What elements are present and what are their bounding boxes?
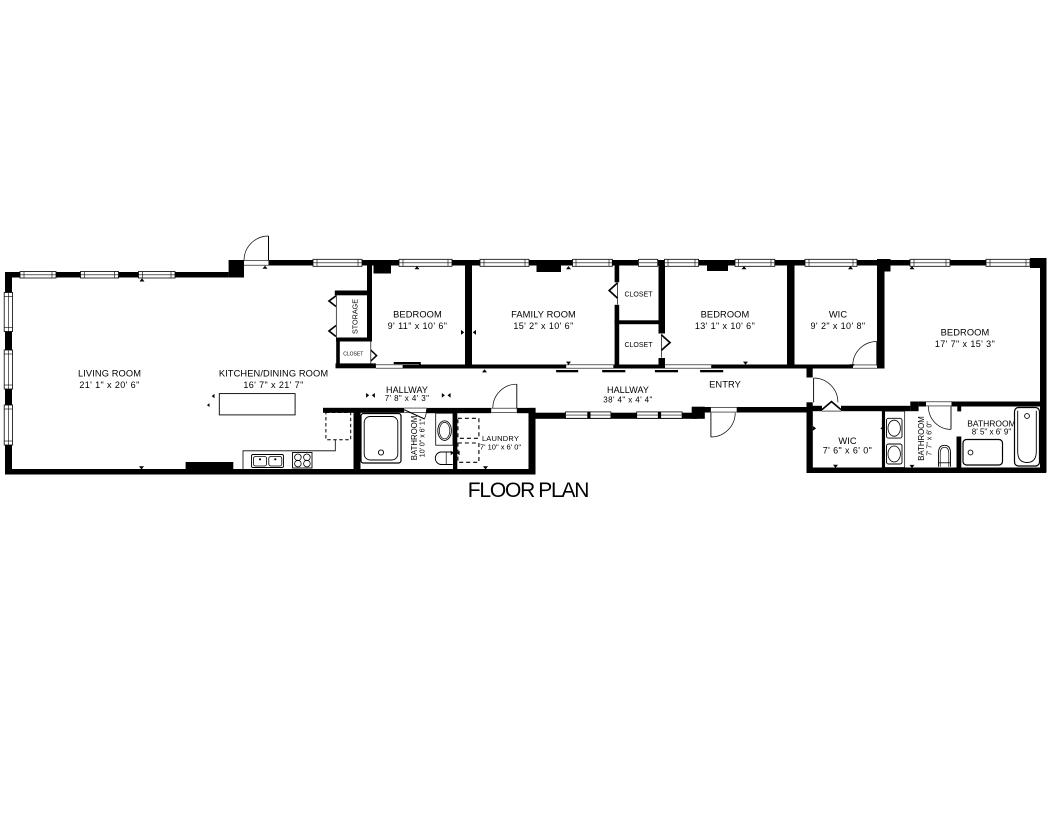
svg-text:STORAGE: STORAGE bbox=[350, 299, 359, 334]
svg-text:7' 8" x 4' 3": 7' 8" x 4' 3" bbox=[385, 394, 430, 403]
svg-text:15' 2" x 10' 6": 15' 2" x 10' 6" bbox=[513, 321, 573, 331]
svg-text:FAMILY ROOM: FAMILY ROOM bbox=[511, 310, 576, 320]
svg-text:BEDROOM: BEDROOM bbox=[393, 310, 442, 320]
svg-text:9' 11" x 10' 6": 9' 11" x 10' 6" bbox=[388, 321, 448, 331]
svg-text:17' 7" x 15' 3": 17' 7" x 15' 3" bbox=[935, 339, 995, 349]
svg-text:CLOSET: CLOSET bbox=[624, 342, 653, 349]
svg-text:CLOSET: CLOSET bbox=[624, 291, 653, 298]
svg-text:8' 5" x 6' 9": 8' 5" x 6' 9" bbox=[972, 427, 1012, 436]
svg-text:LIVING ROOM: LIVING ROOM bbox=[78, 369, 141, 379]
svg-text:7' 7" x 6' 0": 7' 7" x 6' 0" bbox=[927, 421, 934, 456]
svg-text:FLOOR PLAN: FLOOR PLAN bbox=[468, 479, 589, 502]
svg-text:CLOSET: CLOSET bbox=[343, 351, 363, 357]
svg-text:BEDROOM: BEDROOM bbox=[941, 328, 990, 338]
svg-text:7' 10" x 6' 0": 7' 10" x 6' 0" bbox=[480, 443, 521, 452]
svg-text:10' 0" x 6' 1": 10' 0" x 6' 1" bbox=[420, 418, 427, 457]
svg-text:KITCHEN/DINING ROOM: KITCHEN/DINING ROOM bbox=[219, 369, 328, 379]
svg-text:WIC: WIC bbox=[829, 310, 848, 320]
svg-text:BATHROOM: BATHROOM bbox=[917, 416, 926, 460]
svg-text:HALLWAY: HALLWAY bbox=[607, 385, 649, 395]
svg-text:ENTRY: ENTRY bbox=[709, 380, 741, 390]
svg-text:38' 4" x 4' 4": 38' 4" x 4' 4" bbox=[603, 396, 652, 405]
svg-text:16' 7" x 21' 7": 16' 7" x 21' 7" bbox=[243, 380, 303, 390]
svg-text:7' 6" x 6' 0": 7' 6" x 6' 0" bbox=[823, 445, 873, 455]
svg-text:21' 1" x 20' 6": 21' 1" x 20' 6" bbox=[79, 380, 139, 390]
svg-text:BATHROOM: BATHROOM bbox=[410, 416, 419, 460]
svg-text:13' 1" x 10' 6": 13' 1" x 10' 6" bbox=[695, 321, 755, 331]
svg-text:BEDROOM: BEDROOM bbox=[701, 310, 750, 320]
svg-text:9' 2" x 10' 8": 9' 2" x 10' 8" bbox=[811, 321, 866, 331]
